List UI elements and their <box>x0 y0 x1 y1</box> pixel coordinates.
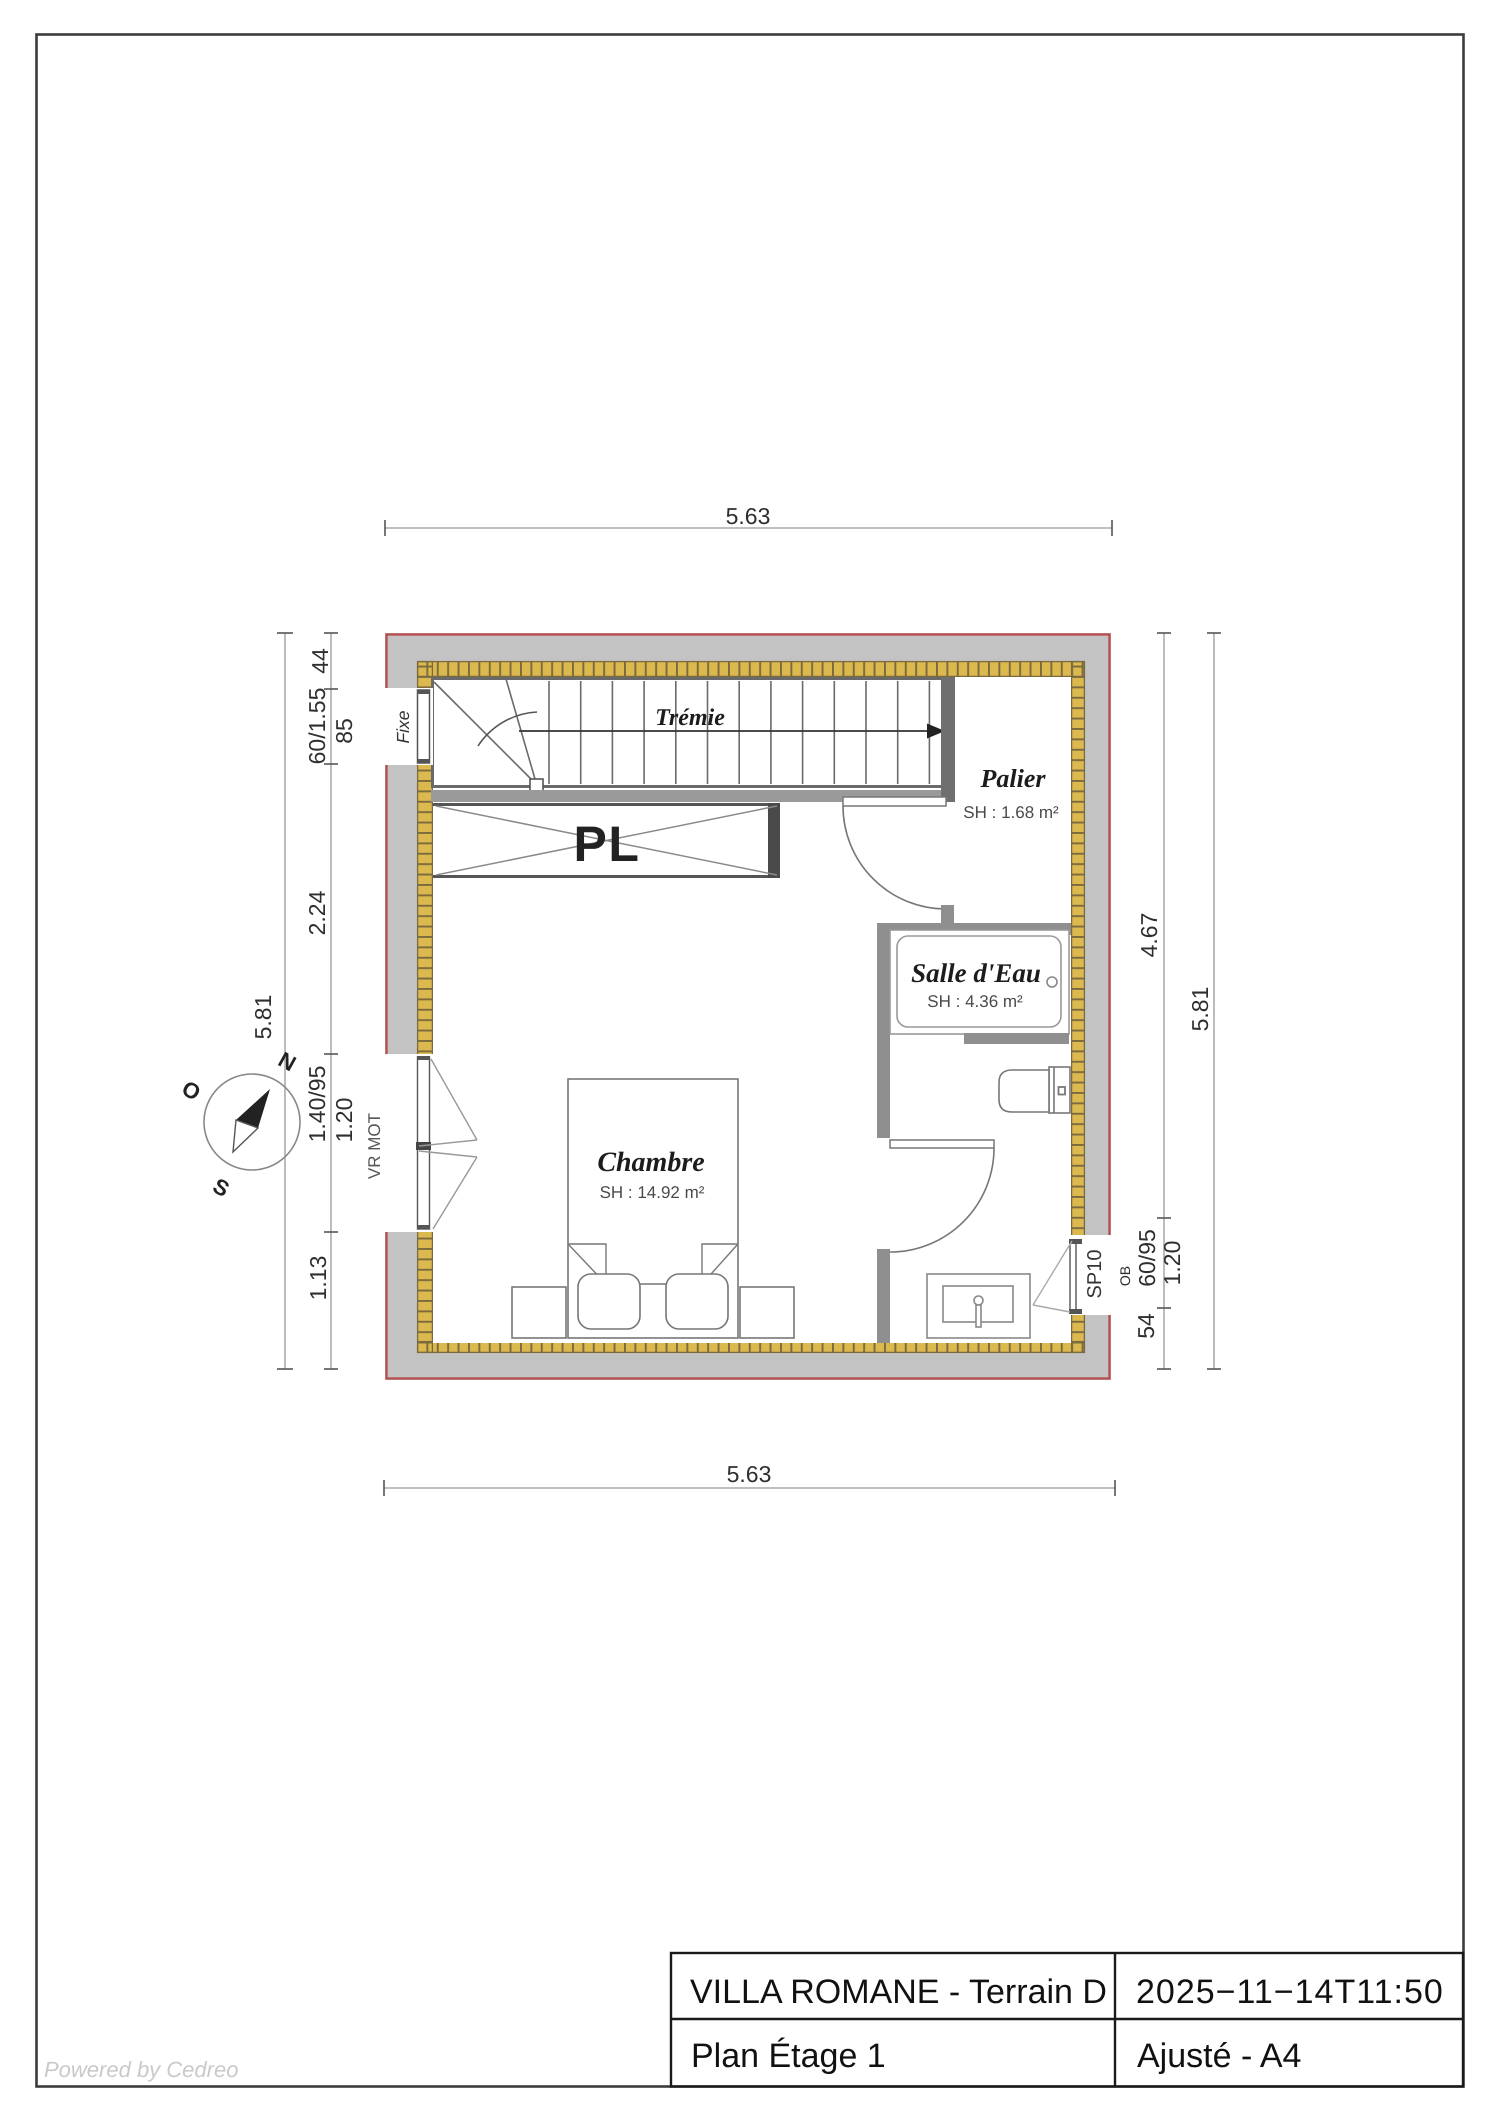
svg-text:Trémie: Trémie <box>655 705 725 731</box>
svg-text:OB: OB <box>1117 1266 1133 1286</box>
svg-text:5.63: 5.63 <box>727 1461 772 1487</box>
svg-text:1.40/95: 1.40/95 <box>304 1066 330 1143</box>
svg-text:Salle d'Eau: Salle d'Eau <box>911 958 1041 988</box>
svg-text:44: 44 <box>307 648 333 674</box>
svg-text:SH : 1.68 m²: SH : 1.68 m² <box>963 803 1059 822</box>
svg-text:Ajusté - A4: Ajusté - A4 <box>1137 2037 1301 2075</box>
svg-text:VILLA ROMANE - Terrain D: VILLA ROMANE - Terrain D <box>690 1973 1107 2011</box>
svg-text:5.63: 5.63 <box>726 503 771 529</box>
svg-text:1.13: 1.13 <box>305 1256 331 1301</box>
svg-text:Chambre: Chambre <box>597 1147 704 1178</box>
svg-text:Palier: Palier <box>980 764 1047 793</box>
svg-text:5.81: 5.81 <box>250 995 276 1040</box>
svg-text:60/95: 60/95 <box>1134 1229 1160 1287</box>
svg-text:VR MOT: VR MOT <box>365 1113 384 1179</box>
svg-text:2025−11−14T11:50: 2025−11−14T11:50 <box>1136 1973 1444 2011</box>
svg-text:54: 54 <box>1133 1313 1159 1339</box>
svg-text:SH : 14.92 m²: SH : 14.92 m² <box>600 1183 705 1202</box>
svg-text:SP10: SP10 <box>1084 1250 1106 1299</box>
svg-text:1.20: 1.20 <box>331 1098 357 1143</box>
svg-text:SH : 4.36 m²: SH : 4.36 m² <box>927 992 1023 1011</box>
svg-text:PL: PL <box>574 816 641 872</box>
svg-text:Fixe: Fixe <box>393 710 413 743</box>
svg-text:Plan Étage 1: Plan Étage 1 <box>691 2037 886 2075</box>
svg-text:1.20: 1.20 <box>1159 1241 1185 1286</box>
svg-text:60/1.55: 60/1.55 <box>304 688 330 765</box>
svg-text:2.24: 2.24 <box>304 890 330 935</box>
svg-text:85: 85 <box>331 718 357 744</box>
svg-text:4.67: 4.67 <box>1136 913 1162 958</box>
svg-text:5.81: 5.81 <box>1187 987 1213 1032</box>
svg-text:Powered by Cedreo: Powered by Cedreo <box>44 2057 238 2082</box>
